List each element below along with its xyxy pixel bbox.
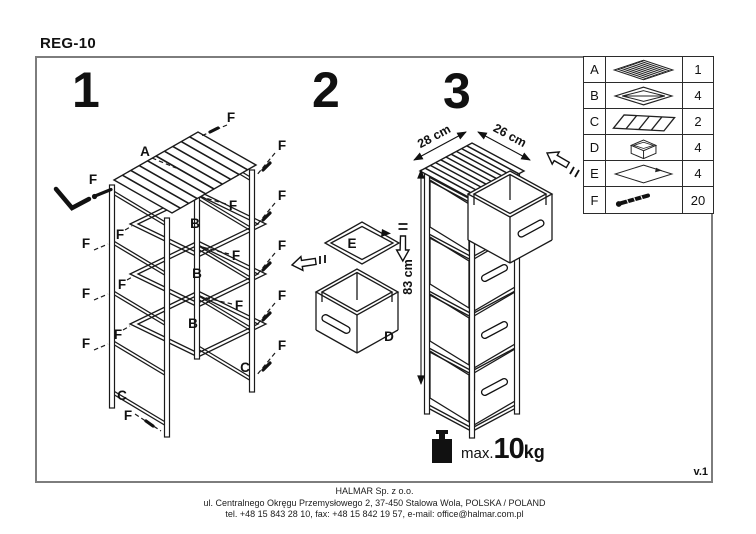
step-2-number: 2	[312, 62, 340, 118]
part-qty: 4	[683, 135, 713, 160]
label-d: D	[384, 329, 394, 344]
label-f: F	[227, 110, 235, 125]
bottom-panel-e-drawing	[325, 222, 399, 264]
parts-list-table: A 1 B 4 C 2 D 4 E	[583, 56, 714, 214]
label-f: F	[89, 172, 97, 187]
instruction-sheet: REG-10 1	[0, 0, 756, 534]
label-f: F	[118, 277, 126, 292]
table-row: B 4	[584, 83, 713, 109]
label-f: F	[278, 288, 286, 303]
part-qty: 4	[683, 161, 713, 186]
label-f: F	[82, 236, 90, 251]
tower-drawer-fronts	[474, 235, 515, 425]
part-letter: B	[584, 83, 606, 108]
step-3-number: 3	[443, 63, 471, 119]
label-b: B	[190, 216, 200, 231]
screw-icon	[606, 187, 683, 213]
width-dimension-label: 28 cm	[415, 122, 453, 151]
step-1-number: 1	[72, 62, 100, 118]
drawer-box-icon	[606, 135, 683, 160]
slatted-top-panel-icon	[606, 57, 683, 82]
label-a: A	[140, 144, 150, 159]
table-row: C 2	[584, 109, 713, 135]
label-f: F	[114, 327, 122, 342]
shelf-frame-icon	[606, 83, 683, 108]
height-dimension-label: 83 cm	[401, 259, 415, 294]
max-load-unit: kg	[524, 442, 545, 463]
part-letter: C	[584, 109, 606, 134]
table-row: A 1	[584, 57, 713, 83]
max-load-prefix: max.	[461, 445, 494, 462]
label-f: F	[278, 138, 286, 153]
label-f: F	[116, 227, 124, 242]
company-address: ul. Centralnego Okręgu Przemysłowego 2, …	[0, 498, 749, 510]
company-name: HALMAR Sp. z o.o.	[0, 486, 749, 498]
step2-drawer-assembly-drawing: 2 E	[292, 62, 409, 353]
label-f: F	[278, 238, 286, 253]
max-load-value: 10	[494, 435, 524, 464]
allen-key-icon	[56, 189, 111, 208]
part-letter: F	[584, 187, 606, 213]
step1-frame-assembly-drawing: 1	[56, 62, 286, 437]
part-letter: E	[584, 161, 606, 186]
tower-side-openings	[430, 180, 469, 422]
part-qty: 1	[683, 57, 713, 82]
manufacturer-footer: HALMAR Sp. z o.o. ul. Centralnego Okręgu…	[0, 486, 749, 521]
bottom-panel-icon	[606, 161, 683, 186]
label-b: B	[188, 316, 198, 331]
part-qty: 4	[683, 83, 713, 108]
part-qty: 20	[683, 187, 713, 213]
label-f: F	[124, 408, 132, 423]
label-c: C	[117, 388, 127, 403]
label-e: E	[347, 236, 356, 251]
label-f: F	[278, 188, 286, 203]
depth-dimension-label: 26 cm	[491, 121, 529, 150]
version-label: v.1	[660, 466, 708, 478]
label-f: F	[82, 286, 90, 301]
label-b: B	[192, 266, 202, 281]
insert-left-arrow-icon	[292, 255, 325, 270]
label-f: F	[232, 248, 240, 263]
label-f: F	[235, 298, 243, 313]
label-f: F	[278, 338, 286, 353]
step3-finished-unit-drawing: 3	[401, 63, 579, 438]
max-load-text: max. 10 kg	[461, 435, 545, 464]
table-row: F 20	[584, 187, 713, 213]
table-row: D 4	[584, 135, 713, 161]
table-row: E 4	[584, 161, 713, 187]
part-letter: A	[584, 57, 606, 82]
part-qty: 2	[683, 109, 713, 134]
company-contact: tel. +48 15 843 28 10, fax: +48 15 842 1…	[0, 509, 749, 521]
label-f: F	[82, 336, 90, 351]
weight-icon	[430, 430, 454, 464]
max-load-note: max. 10 kg	[430, 430, 545, 464]
label-c: C	[240, 360, 250, 375]
part-letter: D	[584, 135, 606, 160]
side-ladder-frame-icon	[606, 109, 683, 134]
insert-nw-arrow-icon	[547, 152, 579, 177]
label-f: F	[229, 198, 237, 213]
